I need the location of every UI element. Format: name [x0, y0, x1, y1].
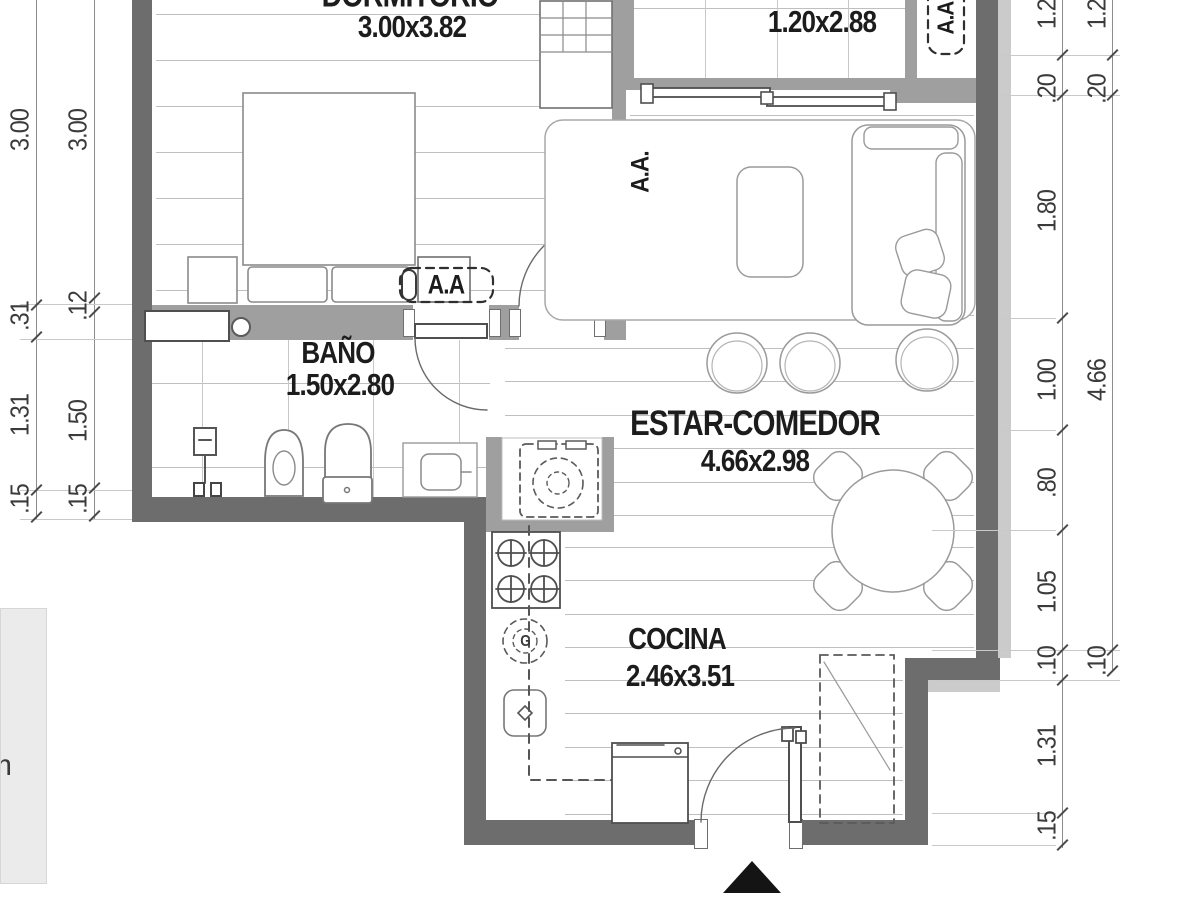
dim-label: .15 [1032, 811, 1063, 841]
furniture-layer [0, 0, 1200, 900]
toilet-tank [323, 477, 372, 503]
pillow-right [332, 267, 410, 302]
balcony-window-jamb-right [884, 93, 896, 110]
dim-label: 1.80 [1032, 190, 1063, 232]
entry-door-hinge-2 [796, 731, 806, 743]
ext-line [20, 339, 132, 340]
sofa-cushion-2 [899, 268, 953, 321]
bath-knob [232, 318, 250, 336]
room-size-estar: 4.66x2.98 [701, 443, 809, 479]
dim-line-left-inner [94, 0, 95, 520]
dim-line-right-inner [1062, 0, 1063, 848]
toilet-bowl [325, 424, 371, 480]
bath-door-arc [415, 338, 487, 410]
room-size-cocina: 2.46x3.51 [626, 658, 734, 694]
balcony-window-right [767, 97, 888, 106]
nightstand [188, 257, 237, 303]
shower-foot-right [211, 483, 221, 496]
dim-label: .31 [5, 301, 36, 331]
ac-label-estar: A.A. [627, 151, 656, 192]
ottoman-3 [896, 329, 958, 391]
dim-label: .80 [1032, 468, 1063, 498]
fridge [612, 743, 688, 823]
pillow-left [248, 267, 327, 302]
cropped-side-text: m [0, 749, 12, 783]
dining-table [832, 470, 954, 592]
room-label-cocina: COCINA [628, 621, 726, 657]
shower-foot-left [194, 483, 204, 496]
ext-line [20, 519, 132, 520]
bath-window [145, 311, 229, 341]
dim-label: 1.31 [1032, 725, 1063, 767]
ext-line [932, 530, 1056, 531]
ottoman-2 [780, 333, 840, 393]
dim-label: .15 [5, 484, 36, 514]
shower-head [194, 428, 216, 455]
balcony-window-jamb-mid [761, 92, 773, 104]
dim-label: 4.66 [1082, 359, 1113, 401]
entry-door-arc [701, 728, 795, 822]
dim-label: 1.05 [1032, 571, 1063, 613]
bidet [265, 430, 303, 496]
dim-label: .12 [63, 291, 94, 321]
ext-line [932, 845, 1056, 846]
dim-line-left-outer [36, 0, 37, 520]
entrance-triangle [723, 861, 781, 893]
dim-label: 3.00 [63, 109, 94, 151]
dim-label: 1.50 [63, 400, 94, 442]
ext-line [1000, 430, 1056, 431]
ac-label-balcon: A.A [933, 2, 960, 35]
dim-label: .15 [63, 484, 94, 514]
dim-label: 1.20 [1082, 0, 1113, 29]
ottoman-1 [707, 333, 767, 393]
wardrobe [540, 1, 612, 108]
ext-line [1000, 318, 1056, 319]
room-label-estar: ESTAR-COMEDOR [630, 404, 880, 444]
cropped-side-panel: m [0, 608, 47, 884]
ext-line [932, 680, 1120, 681]
room-size-dormitorio: 3.00x3.82 [358, 9, 466, 45]
gas-meter-label: G [520, 633, 530, 651]
kitchen-sink [504, 690, 546, 736]
pantry-cabinet-dashed [820, 655, 894, 823]
pantry-cabinet-diagonal [824, 662, 890, 770]
vanity-counter [403, 443, 477, 497]
bed [243, 93, 415, 265]
room-size-balcon: 1.20x2.88 [768, 4, 876, 40]
room-label-bano: BAÑO [301, 335, 374, 371]
dim-label: .10 [1032, 646, 1063, 676]
dim-label: .20 [1032, 74, 1063, 104]
bedroom-ac-small [402, 270, 416, 300]
balcony-window-jamb-left [641, 84, 653, 103]
balcony-window-left [649, 88, 770, 97]
room-size-bano: 1.50x2.80 [286, 367, 394, 403]
dim-label: 1.00 [1032, 359, 1063, 401]
dim-label: 1.20 [1032, 0, 1063, 29]
washer-knob-1 [538, 441, 556, 449]
dim-label: .10 [1082, 646, 1113, 676]
washer-knob-2 [566, 441, 586, 449]
dim-label: .20 [1082, 74, 1113, 104]
bath-door-leaf [415, 324, 487, 338]
dim-label: 3.00 [5, 109, 36, 151]
dim-label: 1.31 [5, 394, 36, 436]
ac-label-dormitorio: A.A [428, 270, 465, 301]
floor-plan-page: 3.00 .31 1.31 .15 3.00 .12 1.50 .15 1.20… [0, 0, 1200, 900]
coffee-table [737, 167, 803, 277]
